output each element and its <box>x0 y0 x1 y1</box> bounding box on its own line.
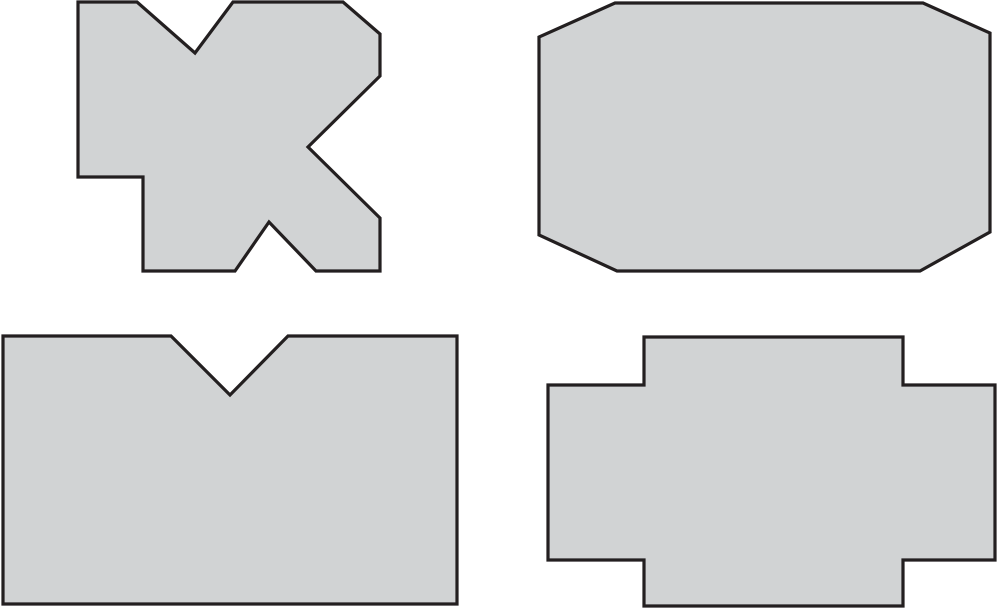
shape-bottom-left-notched-rectangle <box>3 336 457 604</box>
shape-bottom-right-cross <box>548 337 995 606</box>
shape-top-left-irregular-cross <box>78 2 380 271</box>
shape-top-right-octagon <box>539 3 990 271</box>
shapes-canvas <box>0 0 1000 610</box>
figure-canvas <box>0 0 1000 610</box>
